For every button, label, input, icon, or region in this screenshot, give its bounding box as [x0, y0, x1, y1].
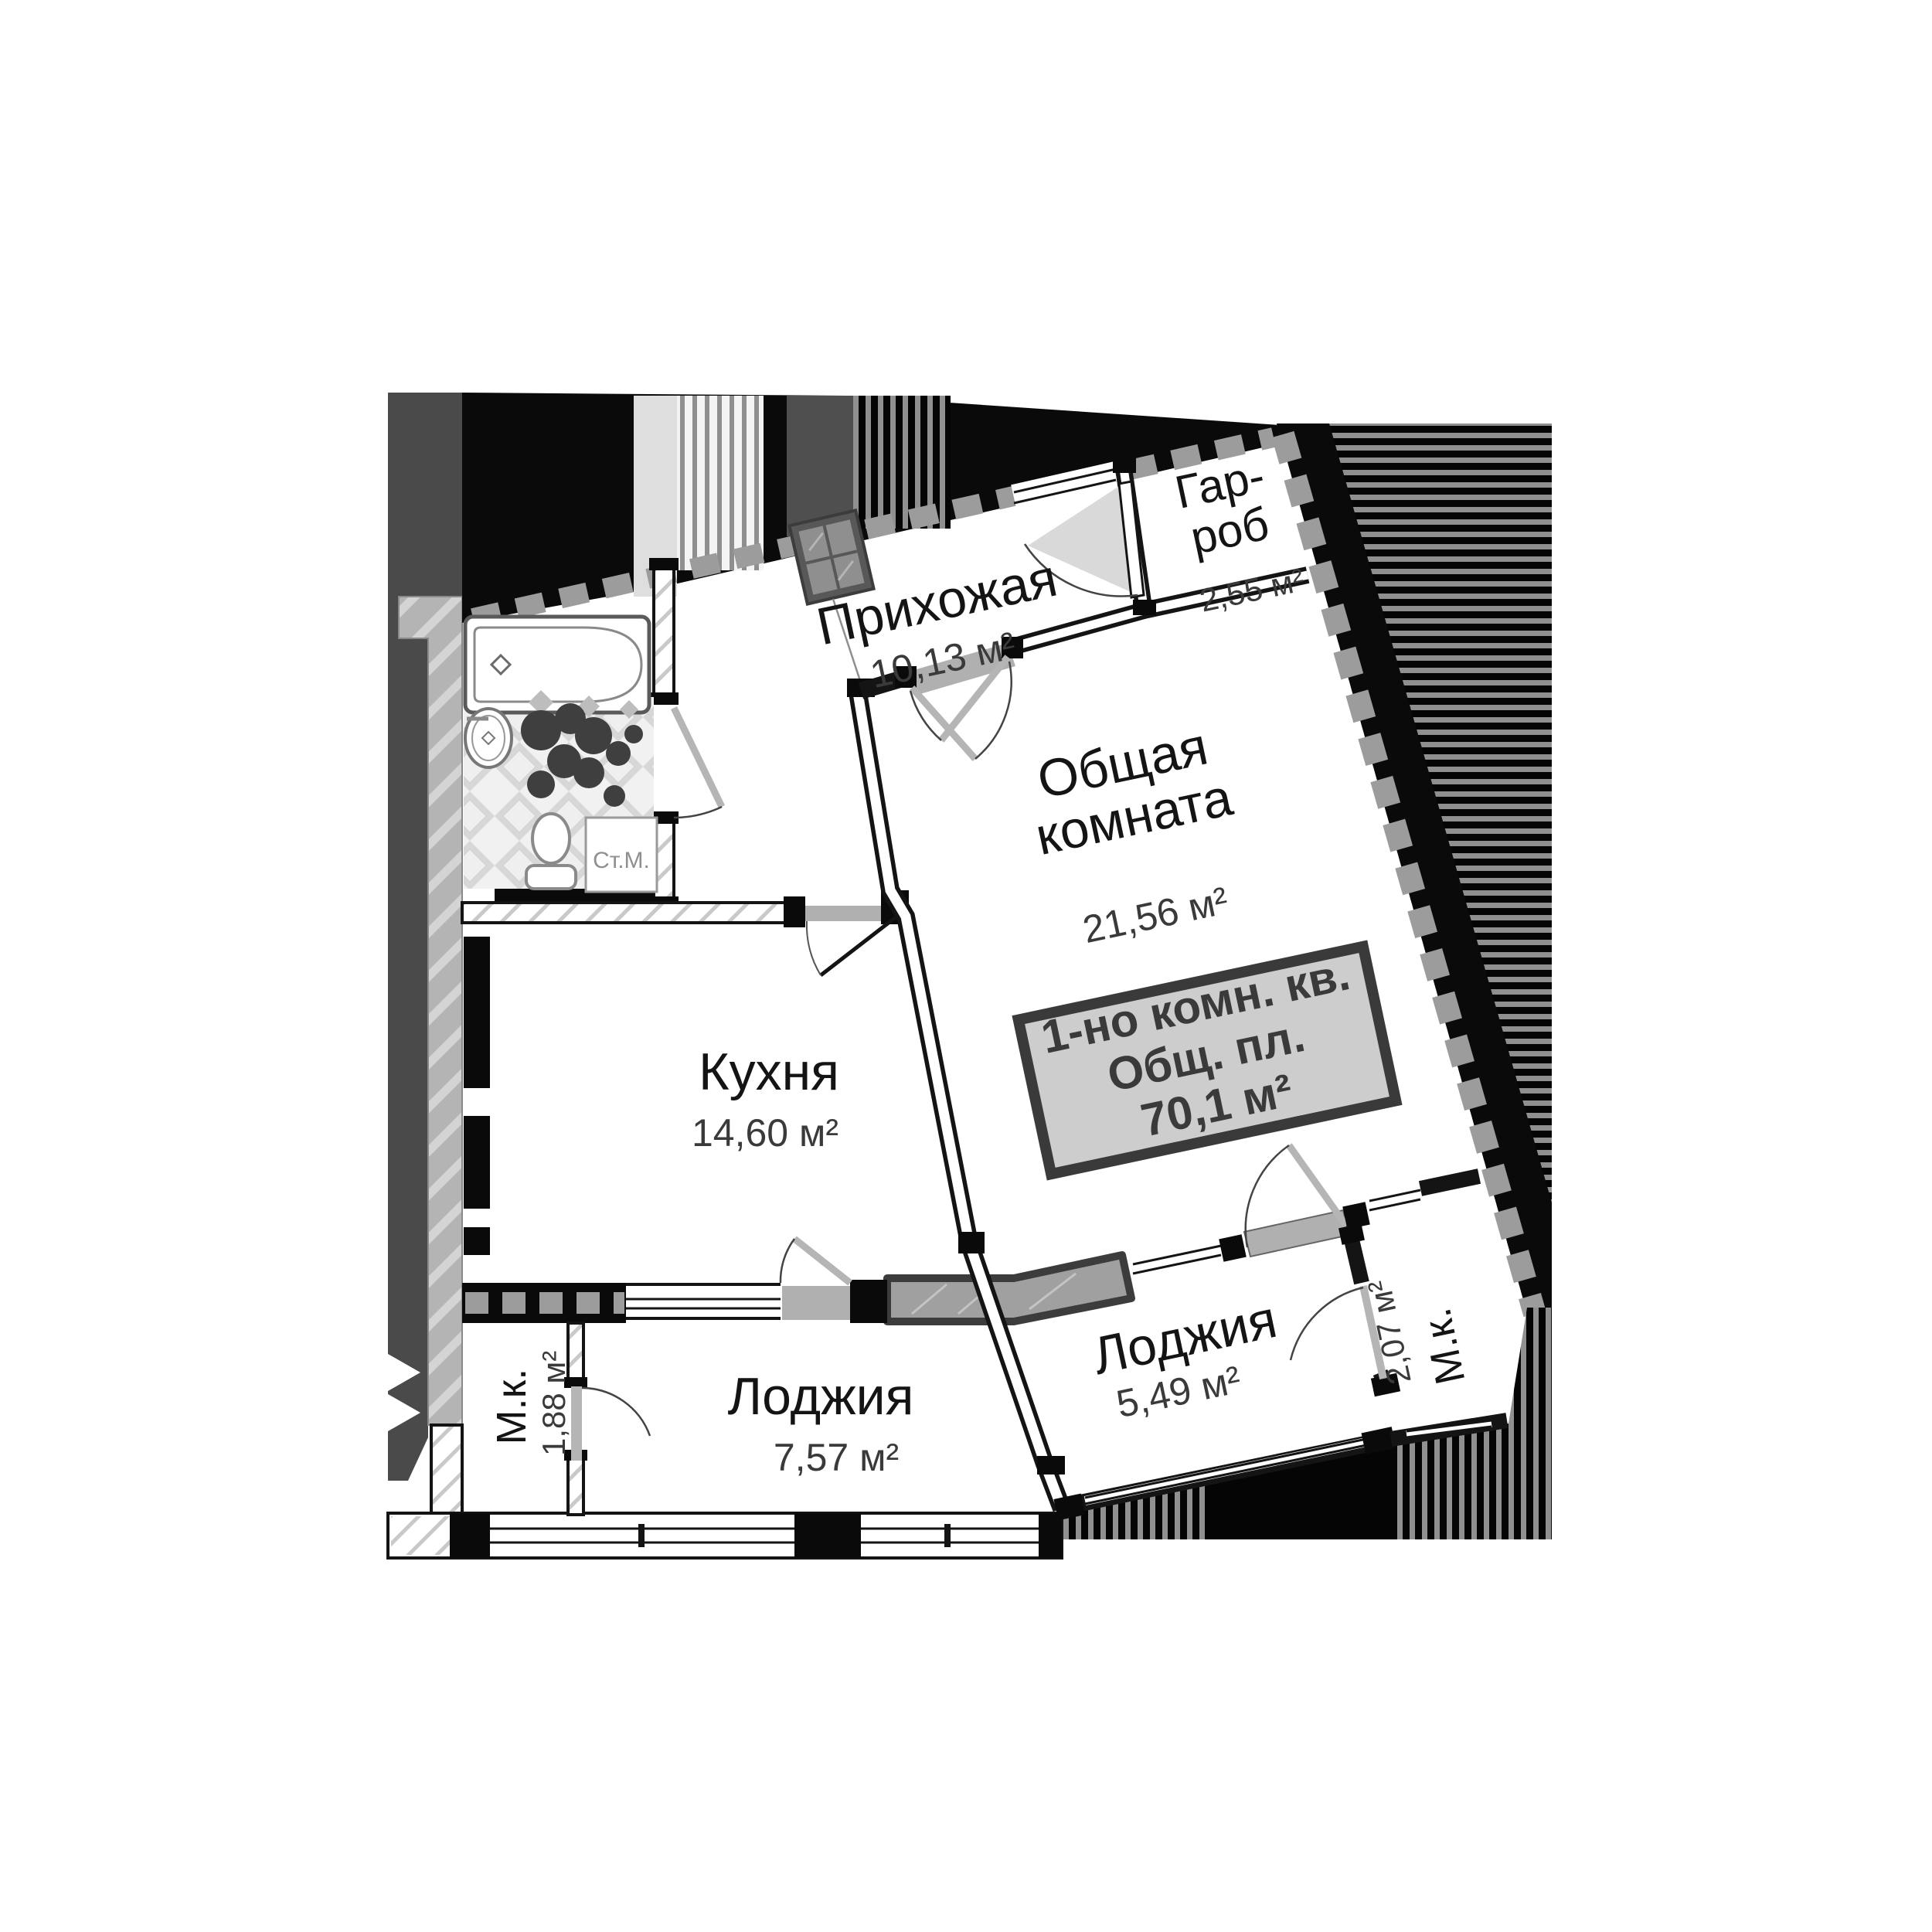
sink-icon [465, 709, 512, 767]
room-label-mk-left: М.к. [490, 1329, 533, 1484]
door-threshold [805, 906, 883, 921]
bathtub-icon [465, 617, 649, 713]
room-label-lodzhiya-left: Лоджия [705, 1369, 937, 1424]
door-arc [807, 921, 821, 975]
room-area-mk-left: 1,88 м² [537, 1326, 571, 1481]
floor-plan: Прихожая 10,13 м² Гар- роб 2,55 м² Общая… [0, 0, 1932, 1932]
washing-machine-label: Ст.М. [583, 849, 660, 872]
living-loggia-boundary [1133, 1145, 1479, 1274]
structural-pylon [887, 1255, 1131, 1321]
door-arc [1291, 1287, 1363, 1360]
room-label-kuhnya: Кухня [653, 1045, 885, 1100]
kitchen-loggia-door [781, 1239, 850, 1283]
door-threshold [782, 1286, 850, 1320]
kitchen-loggia-wall [462, 1280, 887, 1323]
door-leaf [571, 1386, 582, 1461]
mk-left-wall [564, 1323, 650, 1515]
door-arc [674, 807, 722, 818]
door-arc [582, 1388, 650, 1436]
room-area-kuhnya: 14,60 м² [649, 1113, 881, 1153]
floor-plan-drawing [0, 0, 1932, 1932]
bathroom-door [674, 708, 722, 818]
left-building-edge [388, 393, 462, 1516]
hall-kitchen-wall [462, 890, 909, 975]
door-arc [781, 1239, 794, 1283]
bottom-outer-wall [388, 1513, 1062, 1558]
balcony-door-threshold [1244, 1210, 1349, 1257]
door-leaf [821, 912, 903, 975]
room-area-lodzhiya-left: 7,57 м² [720, 1437, 952, 1478]
vent-shaft [464, 937, 490, 1255]
